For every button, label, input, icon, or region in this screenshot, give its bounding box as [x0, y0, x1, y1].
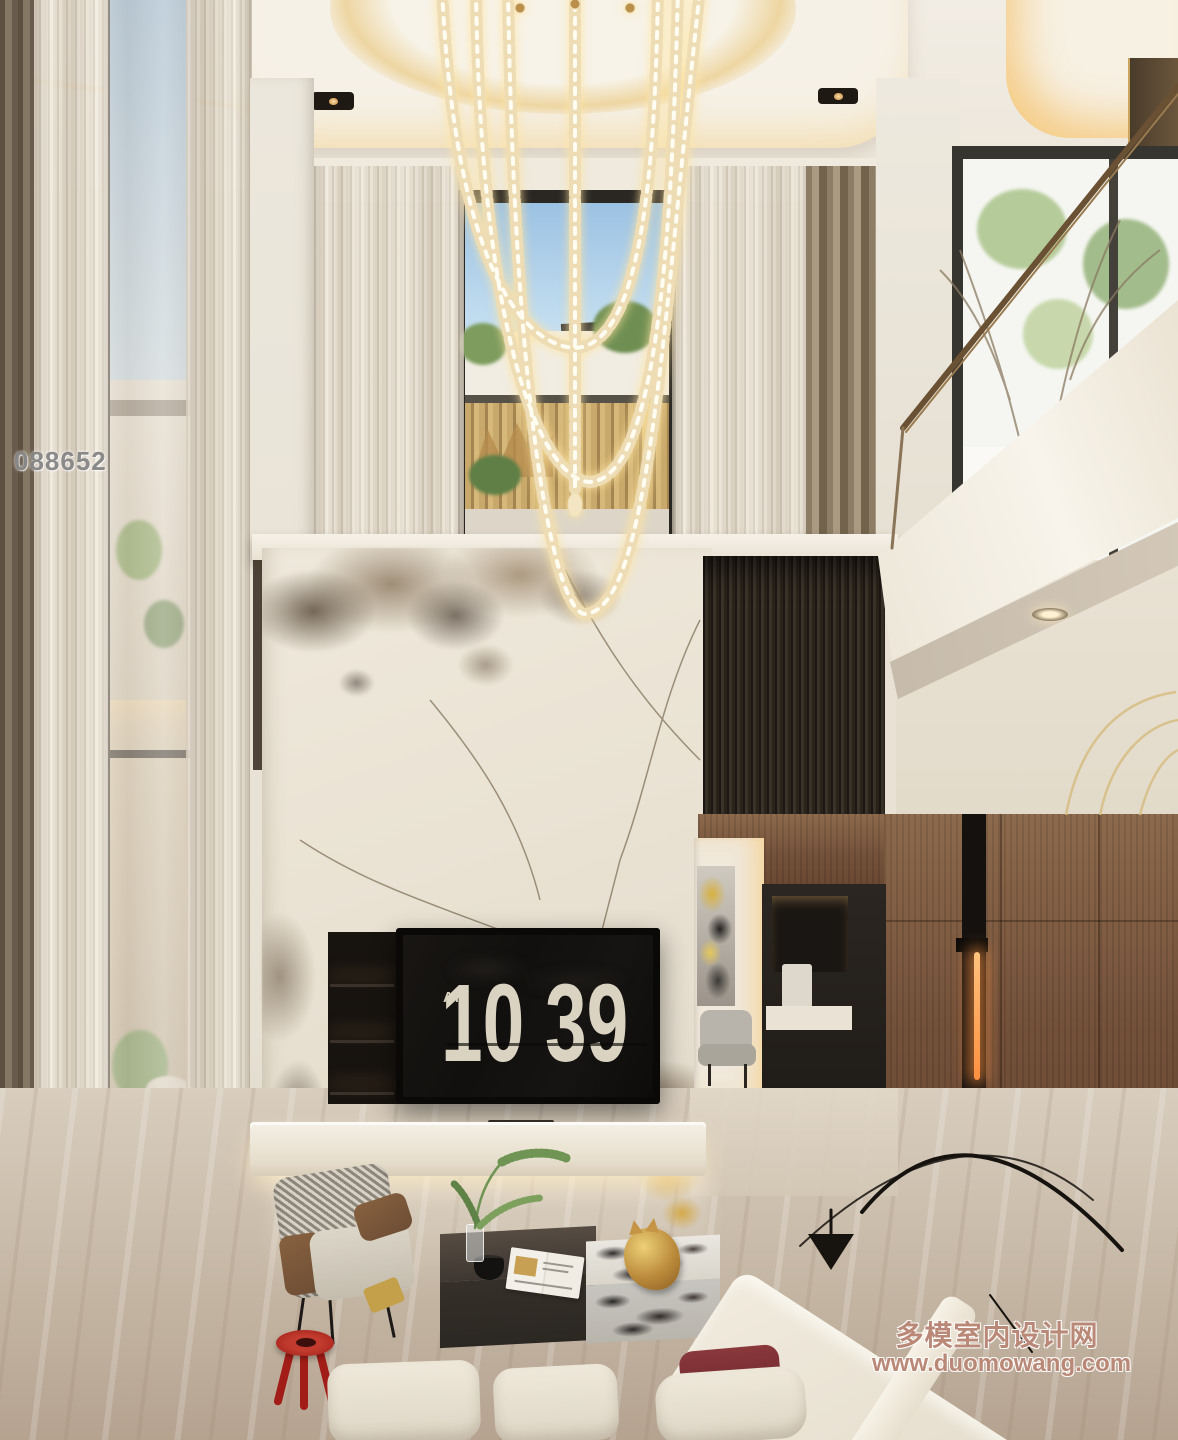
- interior-render-canvas: AM 10 39: [0, 0, 1178, 1440]
- site-name-watermark: 多模室内设计网: [872, 1314, 1122, 1354]
- site-url-watermark: www.duomowang.com: [872, 1350, 1122, 1378]
- crystal-chandelier-icon: [442, 0, 700, 614]
- stair-handrail-icon: [892, 86, 1178, 548]
- lamp-cone-shade: [808, 1234, 854, 1270]
- gold-wall-art-icon: [1066, 692, 1178, 815]
- model-id-watermark: 088652: [14, 446, 107, 477]
- foreground-lines-layer: [0, 0, 1178, 1440]
- fern-plant-icon: [452, 1153, 566, 1228]
